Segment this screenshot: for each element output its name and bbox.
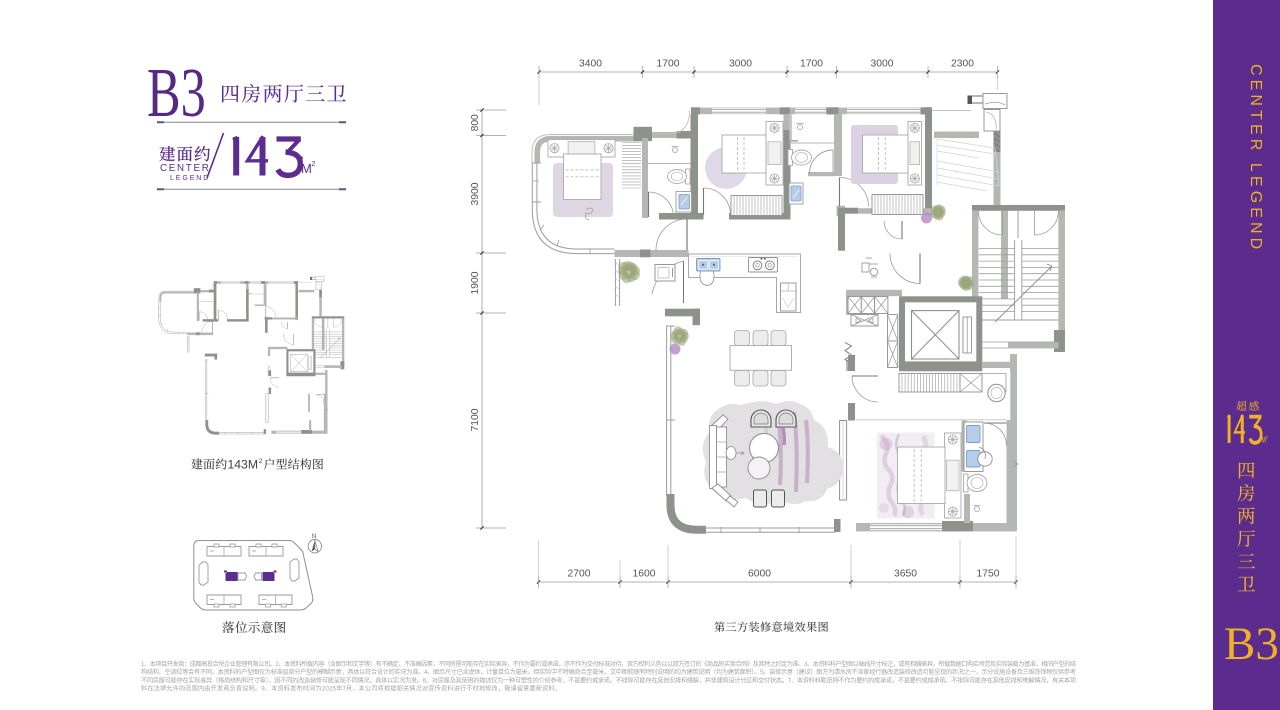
svg-text:M: M xyxy=(301,161,312,176)
svg-text:N: N xyxy=(312,533,317,540)
svg-text:LEGEND: LEGEND xyxy=(170,175,210,182)
svg-text:构结构、空调位等会有不同，本资料的户型图仅为标准层部分户型的: 构结构、空调位等会有不同，本资料的户型图仅为标准层部分户型的模糊示意，具体以符合… xyxy=(141,668,1076,676)
svg-text:1600: 1600 xyxy=(633,569,656,580)
svg-text:3650: 3650 xyxy=(894,569,917,580)
svg-text:B3: B3 xyxy=(147,55,206,132)
svg-text:B3: B3 xyxy=(1224,618,1279,670)
svg-text:不同房屋可能存在实际差异（格局结构和尺寸等），因不同的改造装: 不同房屋可能存在实际差异（格局结构和尺寸等），因不同的改造装修可能呈现不同情况，… xyxy=(141,676,1076,684)
svg-text:1900: 1900 xyxy=(470,271,481,294)
svg-text:CENTER: CENTER xyxy=(160,163,210,174)
svg-text:2300: 2300 xyxy=(951,59,974,70)
svg-text:143M: 143M xyxy=(228,458,259,472)
svg-text:3900: 3900 xyxy=(470,182,481,205)
svg-text:3000: 3000 xyxy=(871,59,894,70)
svg-text:3000: 3000 xyxy=(729,59,752,70)
svg-text:3400: 3400 xyxy=(579,59,602,70)
svg-text:2: 2 xyxy=(312,161,316,168)
svg-text:2700: 2700 xyxy=(568,569,591,580)
svg-text:CENTER LEGEND: CENTER LEGEND xyxy=(1247,64,1264,253)
svg-text:7100: 7100 xyxy=(470,408,481,431)
svg-text:1、本项目开发商：成都高投合悦企业管理有限公司。2、本资料所: 1、本项目开发商：成都高投合悦企业管理有限公司。2、本资料所载内容（含图示和文字… xyxy=(141,660,1076,668)
svg-text:2: 2 xyxy=(259,458,263,465)
svg-text:1700: 1700 xyxy=(657,59,680,70)
svg-text:料在法律允许的范围内由开发商负责说明。9、本资料发布时间为2: 料在法律允许的范围内由开发商负责说明。9、本资料发布时间为2025年7月，本公司… xyxy=(141,685,561,693)
svg-text:1750: 1750 xyxy=(977,569,1000,580)
svg-text:1700: 1700 xyxy=(800,59,823,70)
svg-text:800: 800 xyxy=(470,114,481,131)
svg-text:6000: 6000 xyxy=(748,569,771,580)
